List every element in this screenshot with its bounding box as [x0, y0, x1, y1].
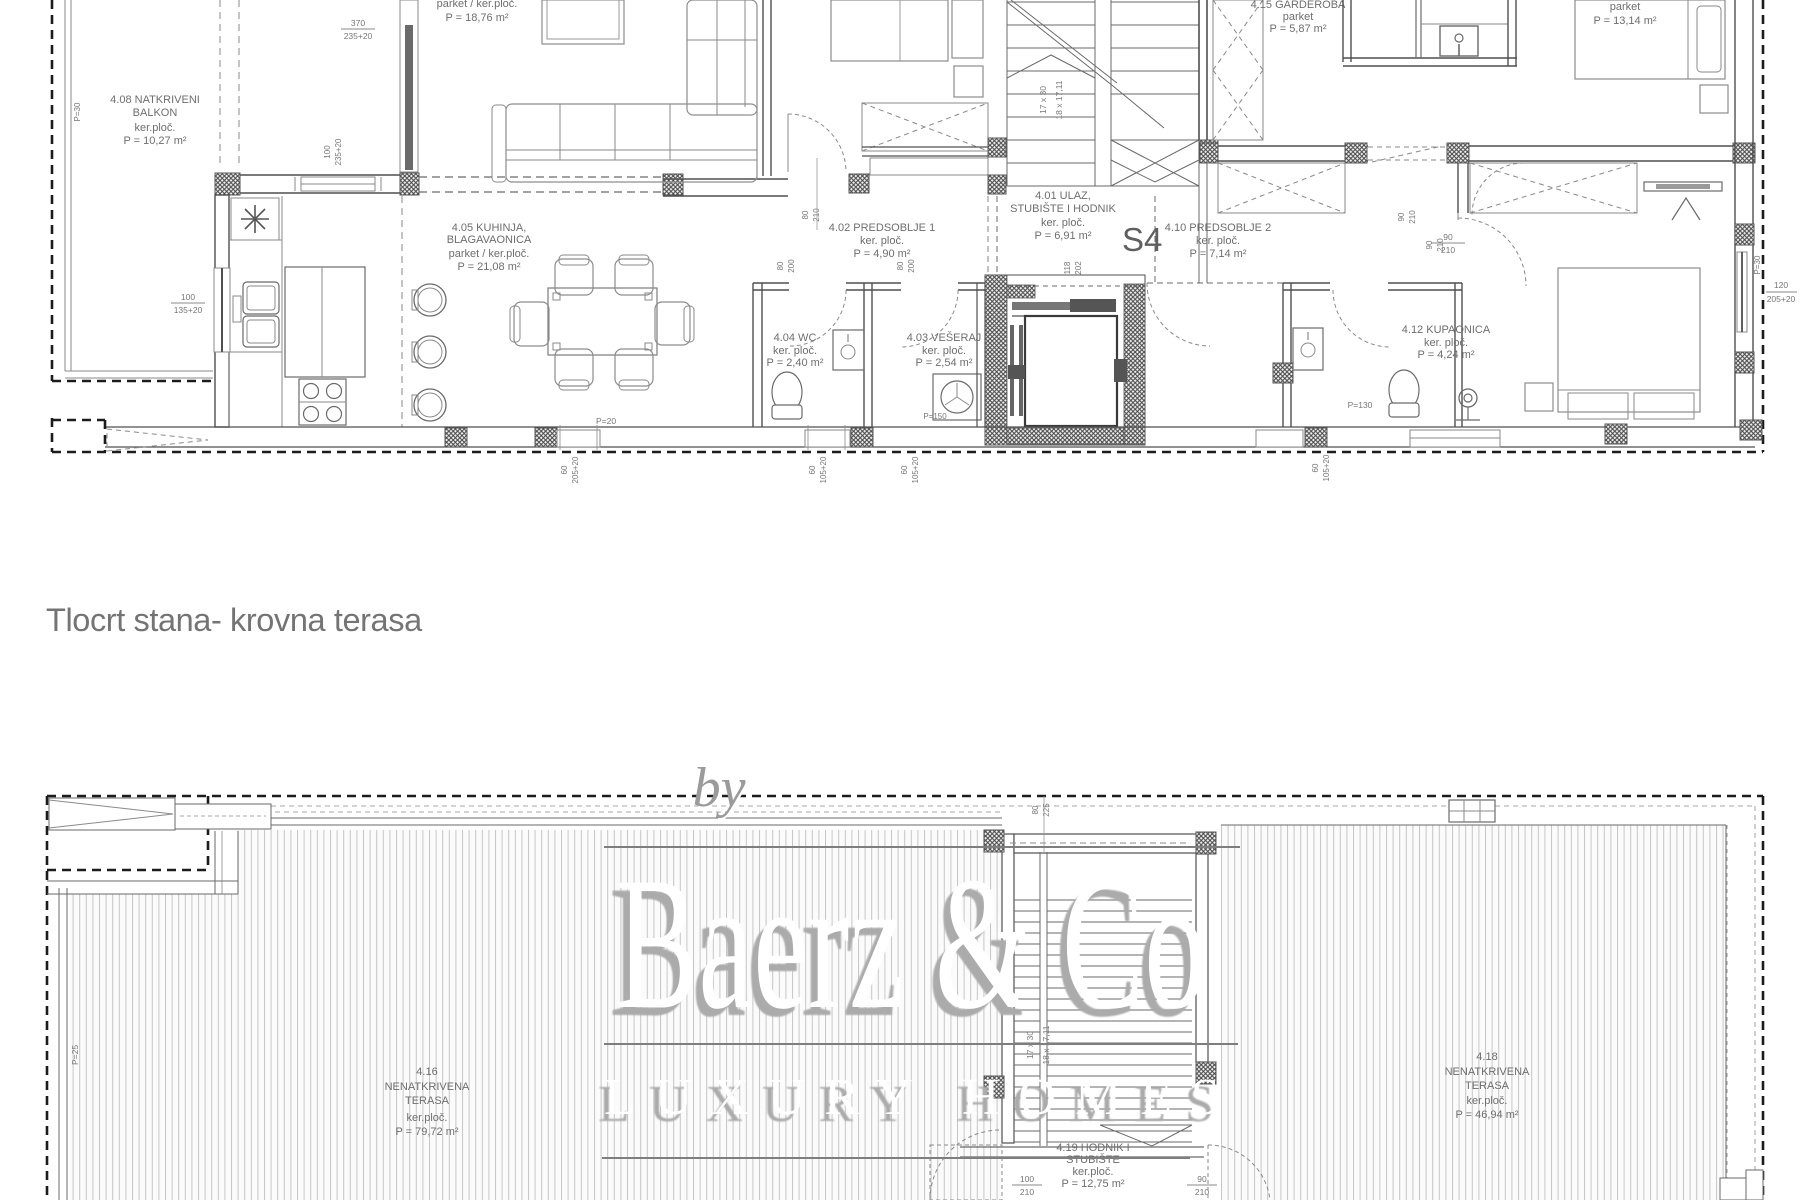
svg-text:225: 225 [1042, 803, 1051, 817]
svg-text:P = 21,08 m²: P = 21,08 m² [457, 261, 520, 273]
svg-text:parket / ker.ploč.: parket / ker.ploč. [449, 248, 530, 260]
svg-text:205+20: 205+20 [1767, 294, 1796, 304]
svg-text:ker.ploč.: ker.ploč. [1073, 1166, 1114, 1178]
svg-text:P = 12,75 m²: P = 12,75 m² [1061, 1178, 1124, 1190]
svg-text:210: 210 [1020, 1187, 1034, 1197]
svg-text:60: 60 [808, 465, 817, 474]
svg-text:4.19 HODNIK I: 4.19 HODNIK I [1056, 1142, 1129, 1154]
svg-text:ker.ploč.: ker.ploč. [135, 122, 176, 134]
svg-text:100: 100 [323, 145, 332, 159]
svg-text:Baerz & Co: Baerz & Co [616, 839, 1206, 1049]
svg-text:135+20: 135+20 [174, 305, 203, 315]
svg-text:by: by [693, 757, 746, 819]
svg-text:80: 80 [1031, 805, 1040, 814]
svg-text:18 x 17,11: 18 x 17,11 [1054, 80, 1064, 119]
svg-text:80: 80 [776, 261, 785, 270]
svg-text:235+20: 235+20 [344, 31, 373, 41]
svg-text:4.12 KUPAONICA: 4.12 KUPAONICA [1402, 324, 1491, 336]
svg-text:205+20: 205+20 [571, 456, 580, 483]
svg-text:202: 202 [1074, 261, 1083, 275]
svg-text:4.16: 4.16 [416, 1066, 437, 1078]
svg-text:ker.ploč.: ker.ploč. [407, 1112, 448, 1124]
svg-text:100: 100 [181, 292, 195, 302]
svg-text:P = 4,24 m²: P = 4,24 m² [1418, 349, 1475, 361]
svg-text:4.10 PREDSOBLJE 2: 4.10 PREDSOBLJE 2 [1165, 222, 1271, 234]
svg-text:P = 5,87 m²: P = 5,87 m² [1270, 23, 1327, 35]
svg-text:370: 370 [351, 18, 365, 28]
svg-text:Tlocrt stana- krovna terasa: Tlocrt stana- krovna terasa [46, 602, 423, 638]
svg-text:P = 79,72 m²: P = 79,72 m² [395, 1126, 458, 1138]
svg-text:STUBIŠTE I HODNIK: STUBIŠTE I HODNIK [1010, 202, 1116, 215]
svg-text:ker. ploč.: ker. ploč. [1196, 235, 1240, 247]
svg-text:4.05 KUHINJA,: 4.05 KUHINJA, [452, 222, 527, 234]
svg-text:P = 46,94 m²: P = 46,94 m² [1455, 1109, 1518, 1121]
svg-text:P = 2,54 m²: P = 2,54 m² [916, 357, 973, 369]
svg-text:200: 200 [787, 259, 796, 273]
svg-text:235+20: 235+20 [334, 138, 343, 165]
svg-text:NENATKRIVENA: NENATKRIVENA [1445, 1066, 1530, 1078]
svg-text:60: 60 [560, 465, 569, 474]
svg-text:BLAGAVAONICA: BLAGAVAONICA [447, 234, 532, 246]
svg-text:80: 80 [801, 210, 810, 219]
svg-text:100: 100 [1020, 1174, 1034, 1184]
svg-text:90: 90 [1397, 212, 1406, 221]
svg-text:S4: S4 [1122, 221, 1162, 258]
svg-text:TERASA: TERASA [405, 1095, 450, 1107]
svg-text:P=30: P=30 [1753, 255, 1762, 274]
svg-text:60: 60 [900, 465, 909, 474]
svg-text:4.18: 4.18 [1476, 1051, 1497, 1063]
svg-text:ker. ploč.: ker. ploč. [922, 345, 966, 357]
svg-text:ker. ploč.: ker. ploč. [1041, 217, 1085, 229]
svg-text:P = 13,14 m²: P = 13,14 m² [1593, 15, 1656, 27]
svg-text:210: 210 [812, 208, 821, 222]
svg-text:TERASA: TERASA [1465, 1080, 1510, 1092]
svg-text:210: 210 [1436, 238, 1445, 252]
svg-text:4.15 GARDEROBA: 4.15 GARDEROBA [1251, 0, 1346, 11]
svg-text:4.04 WC: 4.04 WC [774, 332, 817, 344]
svg-text:ker. ploč.: ker. ploč. [860, 235, 904, 247]
svg-text:120: 120 [1774, 280, 1788, 290]
svg-text:P = 18,76 m²: P = 18,76 m² [445, 12, 508, 24]
svg-text:STUBIŠTE: STUBIŠTE [1066, 1153, 1120, 1166]
svg-text:4.02 PREDSOBLJE 1: 4.02 PREDSOBLJE 1 [829, 222, 935, 234]
svg-text:P=130: P=130 [1348, 400, 1373, 410]
svg-text:210: 210 [1195, 1187, 1209, 1197]
svg-text:80: 80 [896, 261, 905, 270]
svg-text:ker. ploč.: ker. ploč. [1424, 337, 1468, 349]
svg-text:P = 2,40 m²: P = 2,40 m² [767, 357, 824, 369]
svg-text:90: 90 [1425, 240, 1434, 249]
svg-text:60: 60 [1311, 463, 1320, 472]
svg-text:ker.ploč.: ker.ploč. [1467, 1095, 1508, 1107]
svg-text:210: 210 [1408, 210, 1417, 224]
svg-text:P=30: P=30 [73, 102, 82, 121]
svg-text:NENATKRIVENA: NENATKRIVENA [385, 1081, 470, 1093]
svg-text:P = 6,91 m²: P = 6,91 m² [1035, 230, 1092, 242]
svg-text:P=20: P=20 [596, 416, 616, 426]
svg-text:17 x 30: 17 x 30 [1038, 86, 1048, 114]
svg-text:P=150: P=150 [923, 412, 947, 421]
svg-text:4.08 NATKRIVENI: 4.08 NATKRIVENI [110, 94, 200, 106]
svg-text:4.01 ULAZ,: 4.01 ULAZ, [1035, 190, 1091, 202]
svg-text:105+20: 105+20 [1322, 454, 1331, 481]
svg-text:200: 200 [907, 259, 916, 273]
svg-text:P=25: P=25 [70, 1045, 80, 1065]
svg-text:P = 7,14 m²: P = 7,14 m² [1190, 248, 1247, 260]
svg-text:parket: parket [1283, 11, 1314, 23]
svg-text:105+20: 105+20 [819, 456, 828, 483]
svg-text:LUXURY HOMES: LUXURY HOMES [604, 1069, 1239, 1126]
svg-text:90: 90 [1197, 1174, 1207, 1184]
svg-text:105+20: 105+20 [911, 456, 920, 483]
svg-text:ker. ploč.: ker. ploč. [773, 345, 817, 357]
svg-text:4.03 VEŠERAJ: 4.03 VEŠERAJ [907, 331, 982, 344]
svg-text:parket: parket [1610, 1, 1641, 13]
svg-text:BALKON: BALKON [133, 107, 178, 119]
svg-text:P = 10,27 m²: P = 10,27 m² [123, 135, 186, 147]
svg-text:118: 118 [1063, 261, 1072, 274]
svg-text:parket / ker.ploč.: parket / ker.ploč. [437, 0, 518, 10]
svg-text:P = 4,90 m²: P = 4,90 m² [854, 248, 911, 260]
